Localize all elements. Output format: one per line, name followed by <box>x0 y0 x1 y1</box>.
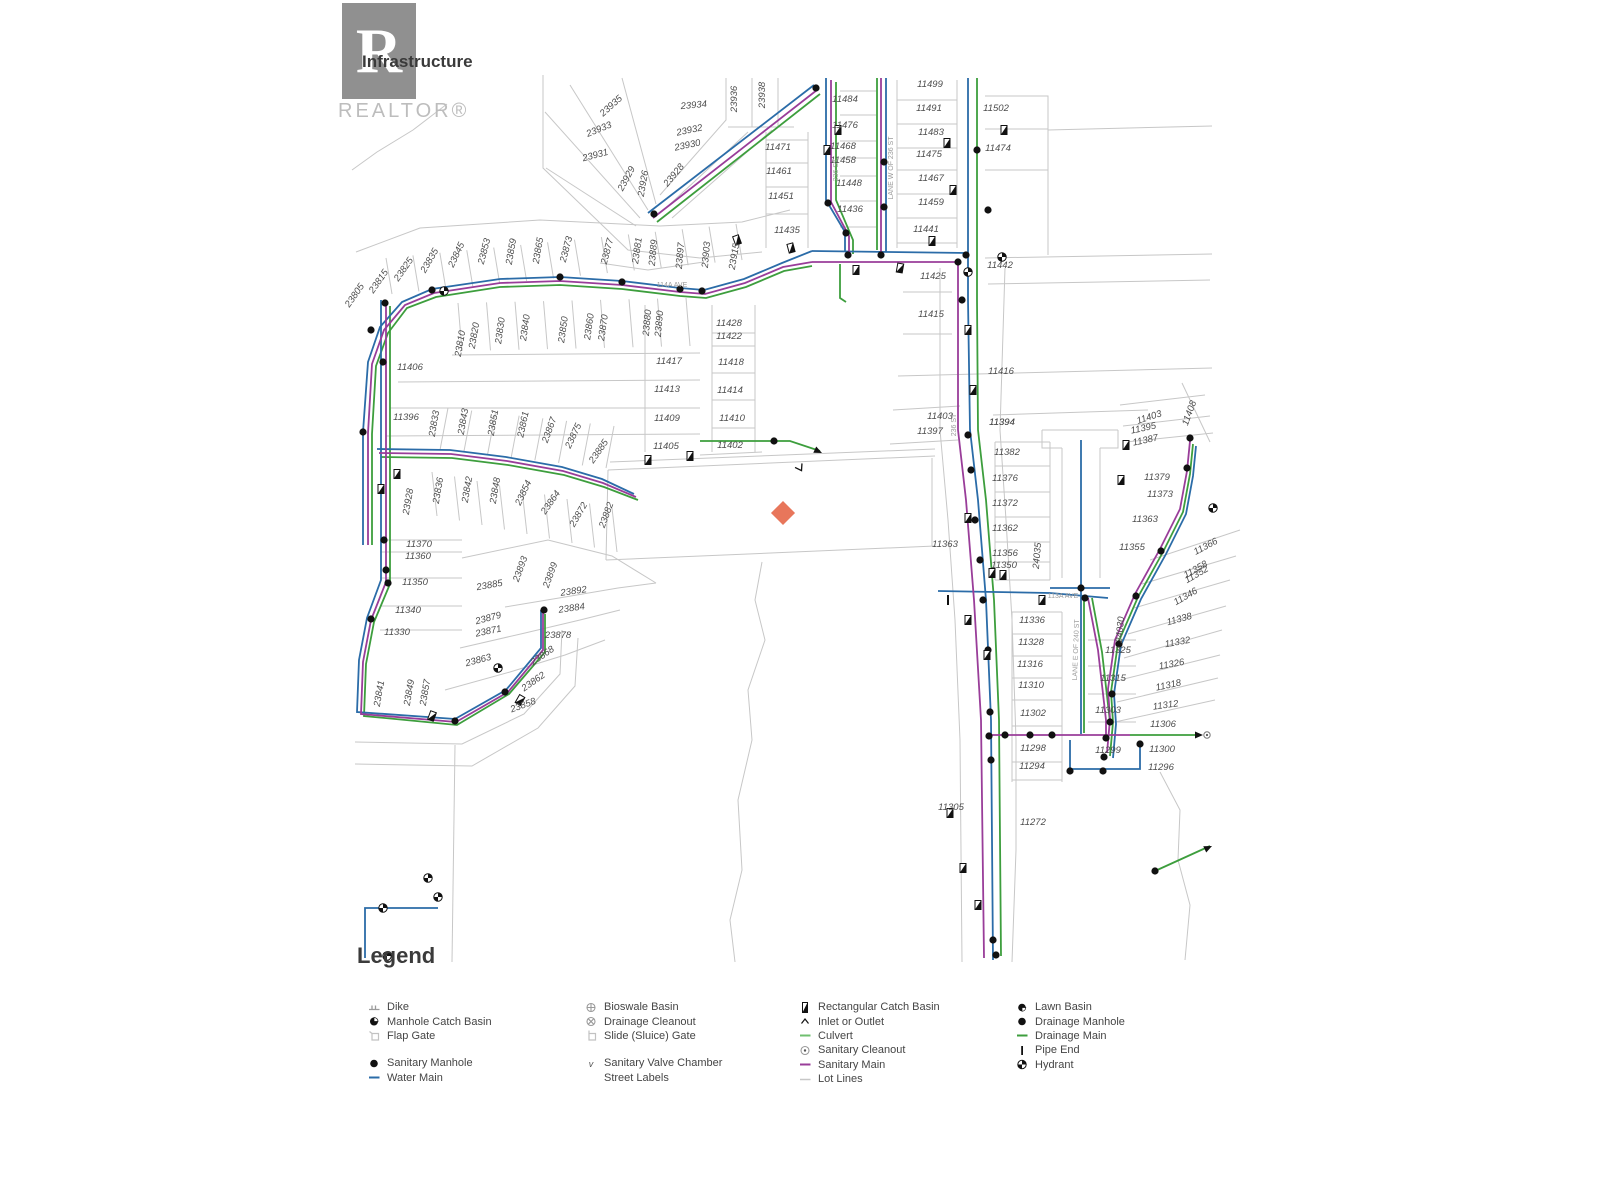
lot-number-label: 23845 <box>446 240 468 270</box>
catch-basin-icon <box>1000 571 1006 580</box>
manhole-icon <box>1151 867 1158 874</box>
manhole-icon <box>380 536 387 543</box>
lot-number-label: 11299 <box>1095 745 1121 756</box>
legend-item-lot-lines: Lot Lines <box>799 1072 940 1086</box>
lot-number-label: 23926 <box>636 169 652 199</box>
hydrant-icon <box>379 904 387 912</box>
manhole-icon <box>1102 734 1109 741</box>
manhole-icon <box>367 615 374 622</box>
legend-item-label: Pipe End <box>1035 1044 1080 1056</box>
lot-line <box>686 298 690 346</box>
lot-number-label: 11376 <box>992 473 1018 484</box>
lot-number-label: 24035 <box>1031 541 1044 570</box>
legend-item-label: Lawn Basin <box>1035 1001 1092 1013</box>
legend-item-label: Sanitary Cleanout <box>818 1044 905 1056</box>
manhole-icon <box>844 251 851 258</box>
catch-basin-icon <box>824 146 830 155</box>
catch-basin-icon <box>944 139 950 148</box>
lot-number-label: 11302 <box>1020 708 1046 719</box>
legend-item-rectangular-catch-basin: Rectangular Catch Basin <box>799 1000 940 1014</box>
legend-item-bioswale-basin: Bioswale Basin <box>585 1000 722 1014</box>
legend-item-label: Rectangular Catch Basin <box>818 1001 940 1013</box>
manhole-icon <box>987 756 994 763</box>
lot-number-label: 11475 <box>916 149 942 160</box>
manhole-icon <box>973 146 980 153</box>
lot-line <box>521 245 527 281</box>
lot-line <box>572 301 576 349</box>
sanitary-main-line <box>958 260 984 958</box>
legend-item-label: Inlet or Outlet <box>818 1016 884 1028</box>
lot-number-label: 11382 <box>994 447 1020 458</box>
lot-number-label: 11502 <box>983 103 1009 114</box>
manhole-icon <box>1136 740 1143 747</box>
manhole-icon <box>954 258 961 265</box>
lot-line <box>1100 430 1118 448</box>
inlet-outlet-icon <box>795 463 805 472</box>
legend-item-water-main: Water Main <box>368 1071 492 1085</box>
lot-number-label: 11372 <box>992 498 1018 509</box>
catch-basin-icon <box>1039 596 1045 605</box>
catch-basin-icon <box>853 266 859 275</box>
manhole-icon <box>877 251 884 258</box>
lot-number-label: 11422 <box>716 331 742 342</box>
catch-basin-icon <box>787 243 795 253</box>
legend-item-label: Sanitary Main <box>818 1059 885 1071</box>
street-label: 236 ST <box>951 413 958 436</box>
lot-line <box>440 253 446 289</box>
manhole-icon <box>1157 547 1164 554</box>
manhole-icon <box>384 579 391 586</box>
street-label: 114A AVE <box>657 282 688 289</box>
lot-number-label: 11448 <box>836 178 862 189</box>
sanitary-manhole-icon <box>368 1057 381 1070</box>
legend-item-label: Lot Lines <box>818 1073 863 1085</box>
lot-line <box>893 406 960 410</box>
lot-number-label: 23835 <box>418 246 442 276</box>
lot-number-label: 23934 <box>679 99 707 112</box>
drainage-main-line <box>1092 598 1110 722</box>
lot-number-label: 11396 <box>393 412 419 423</box>
lot-number-label: 23889 <box>647 238 660 267</box>
cleanout-icon <box>1206 734 1208 736</box>
catch-basin-icon <box>970 386 976 395</box>
catch-basin-icon <box>965 514 971 523</box>
catch-basin-icon <box>896 263 903 273</box>
lot-number-label: 23893 <box>511 554 531 584</box>
infrastructure-map-page: 2393523933239312392923926239282393423932… <box>0 0 1600 1200</box>
legend-item-sanitary-cleanout: Sanitary Cleanout <box>799 1043 940 1057</box>
lot-number-label: 11316 <box>1017 659 1043 670</box>
lot-number-label: 11306 <box>1150 719 1176 730</box>
manhole-icon <box>382 566 389 573</box>
lot-line <box>890 440 958 444</box>
dike-icon <box>368 1001 381 1014</box>
manhole-icon <box>1183 464 1190 471</box>
lot-number-label: 11350 <box>991 560 1017 571</box>
lot-line <box>515 302 519 350</box>
lot-number-label: 11451 <box>768 191 794 202</box>
manhole-icon <box>1077 584 1084 591</box>
manhole-icon <box>367 326 374 333</box>
lot-number-label: 11403 <box>927 411 953 422</box>
lot-number-label: 11296 <box>1148 762 1174 773</box>
water-main-icon <box>368 1071 381 1084</box>
lot-number-label: 11346 <box>1172 585 1200 608</box>
catch-basin-icon <box>960 864 966 873</box>
drainage-main-line <box>1155 846 1210 871</box>
culvert-icon <box>799 1029 812 1042</box>
catch-basin-icon <box>965 326 971 335</box>
lot-number-label: 11303 <box>1095 705 1121 716</box>
lot-number-label: 11362 <box>992 523 1018 534</box>
lot-number-label: 11417 <box>656 356 682 367</box>
legend-item-label: Drainage Manhole <box>1035 1016 1125 1028</box>
lot-number-label: 11366 <box>1192 536 1220 558</box>
legend-item-label: Dike <box>387 1001 409 1013</box>
lot-number-label: 11461 <box>766 166 792 177</box>
manhole-icon <box>992 951 999 958</box>
manhole-icon <box>1048 731 1055 738</box>
lot-number-label: 11370 <box>406 539 432 550</box>
manhole-icon <box>964 431 971 438</box>
pipe-end-icon <box>1016 1044 1029 1057</box>
lot-number-label: 11474 <box>985 143 1011 154</box>
manhole-icon <box>824 199 831 206</box>
pipe-end-icon <box>947 595 949 605</box>
lot-number-label: 11484 <box>832 94 858 105</box>
legend-item-label: Slide (Sluice) Gate <box>604 1030 696 1042</box>
manhole-icon <box>1132 592 1139 599</box>
lot-line <box>629 299 633 347</box>
street-label: 113A AVE <box>1048 593 1079 600</box>
lot-number-label: 23805 <box>342 281 367 310</box>
slide-gate-icon <box>585 1029 598 1042</box>
manhole-icon <box>958 296 965 303</box>
lot-number-label: 11312 <box>1152 698 1180 713</box>
legend-item-label: Sanitary Manhole <box>387 1057 473 1069</box>
legend-item-label: Water Main <box>387 1072 443 1084</box>
lot-number-label: 11418 <box>718 357 744 368</box>
sanitary-main-line <box>361 303 543 722</box>
manhole-icon <box>986 708 993 715</box>
lot-number-label: 11499 <box>917 79 943 90</box>
lot-number-label: 23865 <box>531 236 547 266</box>
lot-line <box>993 410 1148 415</box>
lot-number-label: 11428 <box>716 318 742 329</box>
legend-item-hydrant: Hydrant <box>1016 1058 1125 1072</box>
lot-number-label: 23859 <box>504 237 520 267</box>
lot-line <box>606 546 935 560</box>
lot-number-label: 11471 <box>765 142 791 153</box>
lot-line <box>398 380 700 382</box>
manhole-icon <box>770 437 777 444</box>
manhole-icon <box>379 358 386 365</box>
lot-number-label: 11425 <box>920 271 946 282</box>
manhole-icon <box>556 273 563 280</box>
lot-number-label: 23833 <box>427 409 443 439</box>
lot-line <box>1042 430 1062 448</box>
lot-number-label: 23892 <box>559 584 588 599</box>
lot-number-label: 11363 <box>932 539 958 550</box>
lot-line <box>477 481 482 525</box>
lot-number-label: 23878 <box>544 630 572 641</box>
hydrant-icon <box>424 874 432 882</box>
lot-number-label: 11414 <box>717 385 743 396</box>
manhole-icon <box>1026 731 1033 738</box>
drainage-main-line <box>840 264 846 302</box>
legend-item-drainage-manhole: Drainage Manhole <box>1016 1014 1125 1028</box>
manhole-icon <box>984 206 991 213</box>
manhole-icon <box>812 84 819 91</box>
lot-line <box>988 280 1210 284</box>
manhole-icon <box>381 299 388 306</box>
lot-line <box>985 96 1048 255</box>
legend-column-3: Rectangular Catch BasinInlet or OutletCu… <box>799 1000 940 1086</box>
manhole-icon <box>1099 767 1106 774</box>
lot-number-label: 23830 <box>493 316 508 345</box>
legend-item-label: Manhole Catch Basin <box>387 1016 492 1028</box>
lot-number-label: 11305 <box>938 802 964 813</box>
manhole-icon <box>451 717 458 724</box>
none-icon <box>585 1071 598 1084</box>
manhole-icon <box>359 428 366 435</box>
lot-number-label: 11468 <box>830 141 856 152</box>
lot-number-label: 23884 <box>557 601 586 616</box>
lot-number-label: 11272 <box>1020 817 1046 828</box>
manhole-icon <box>842 229 849 236</box>
manhole-icon <box>1108 690 1115 697</box>
manhole-icon <box>1001 731 1008 738</box>
lot-number-label: 23842 <box>460 475 476 505</box>
rect-catch-basin-icon <box>799 1001 812 1014</box>
hydrant-icon <box>964 268 972 276</box>
lot-number-label: 11315 <box>1100 673 1126 684</box>
lot-number-label: 23857 <box>418 678 434 708</box>
manhole-icon <box>698 287 705 294</box>
drainage-manhole-icon <box>1016 1015 1029 1028</box>
lot-number-label: 23932 <box>674 122 704 139</box>
lot-number-label: 11332 <box>1164 635 1192 650</box>
flow-arrow-icon <box>1195 732 1203 739</box>
lot-number-label: 23885 <box>586 437 611 466</box>
legend-item-label: Bioswale Basin <box>604 1001 679 1013</box>
legend-item-dike: Dike <box>368 1000 492 1014</box>
legend-item-pipe-end: Pipe End <box>1016 1043 1125 1057</box>
lot-number-label: 23850 <box>556 315 571 344</box>
legend-item-label: Drainage Cleanout <box>604 1016 696 1028</box>
lot-number-label: 11356 <box>992 548 1018 559</box>
manhole-icon <box>650 210 657 217</box>
lot-line <box>455 477 460 521</box>
lot-number-label: 11402 <box>717 440 743 451</box>
catch-basin-icon <box>1123 441 1129 450</box>
lot-line <box>494 248 500 284</box>
hydrant-icon <box>1209 504 1217 512</box>
lot-number-label: 23864 <box>538 489 563 518</box>
lot-number-label: 11409 <box>654 413 680 424</box>
legend-item-label: Drainage Main <box>1035 1030 1107 1042</box>
lot-number-label: 23851 <box>486 409 502 438</box>
lot-number-label: 11394 <box>989 417 1015 428</box>
legend-item-label: Street Labels <box>604 1072 669 1084</box>
lot-number-label: 11328 <box>1018 637 1044 648</box>
manhole-icon <box>985 732 992 739</box>
lot-number-label: 11318 <box>1155 677 1183 693</box>
manhole-icon <box>428 286 435 293</box>
catch-basin-icon <box>1001 126 1007 135</box>
lot-number-label: 11363 <box>1132 514 1158 525</box>
lot-line <box>898 368 1212 376</box>
lot-line <box>612 508 617 552</box>
catch-basin-icon <box>1118 476 1124 485</box>
sanitary-cleanout-icon <box>799 1044 812 1057</box>
hydrant-icon <box>440 287 448 295</box>
catch-basin-icon <box>378 485 384 494</box>
lot-number-label: 23903 <box>700 240 713 269</box>
lot-number-label: 11436 <box>837 204 863 215</box>
lot-line <box>985 254 1212 258</box>
catch-basin-icon <box>984 651 990 660</box>
lot-number-label: 11350 <box>402 577 428 588</box>
manhole-icon <box>1081 594 1088 601</box>
water-main-line <box>812 251 968 253</box>
legend-item-label: Hydrant <box>1035 1059 1074 1071</box>
lot-number-label: 11379 <box>1144 472 1170 483</box>
lot-number-label: 11298 <box>1020 743 1046 754</box>
lot-lines-icon <box>799 1073 812 1086</box>
lot-number-label: 11416 <box>988 366 1014 377</box>
street-label: LANE E OF 240 ST <box>1072 619 1081 681</box>
lot-number-label: 23936 <box>729 85 740 113</box>
lot-number-label: 23849 <box>402 678 418 708</box>
lot-line <box>452 745 455 962</box>
legend-title: Legend <box>357 943 435 969</box>
brand-realtor-wordmark: REALTOR® <box>338 100 469 123</box>
lot-number-label: 11326 <box>1158 657 1186 672</box>
manhole-icon <box>1186 434 1193 441</box>
lot-number-label: 11330 <box>384 627 410 638</box>
lot-number-label: 23938 <box>757 81 768 109</box>
lot-number-label: 23810 <box>453 329 469 359</box>
lot-line <box>590 504 595 548</box>
hydrant-icon <box>494 664 502 672</box>
manhole-icon <box>976 556 983 563</box>
manhole-catch-basin-icon <box>368 1015 381 1028</box>
legend-item-drainage-main: Drainage Main <box>1016 1029 1125 1043</box>
lot-number-label: 23915 <box>727 242 743 272</box>
lot-number-label: 23841 <box>372 680 388 709</box>
lot-number-label: 23885 <box>475 578 505 594</box>
legend-item-label: Flap Gate <box>387 1030 435 1042</box>
street-label: LANE W OF 236 ST <box>888 136 895 200</box>
svg-text:v: v <box>589 1059 594 1069</box>
lot-number-label: 11294 <box>1019 761 1045 772</box>
lot-number-label: 23820 <box>467 321 483 351</box>
lot-line <box>452 353 700 355</box>
lot-number-label: 11338 <box>1166 611 1194 628</box>
lot-number-label: 23935 <box>597 93 625 120</box>
lot-number-label: 11310 <box>1018 680 1044 691</box>
sanitary-valve-chamber-icon: v <box>585 1057 598 1070</box>
catch-basin-icon <box>965 616 971 625</box>
lot-line <box>608 456 935 470</box>
legend-item-drainage-cleanout: Drainage Cleanout <box>585 1014 722 1028</box>
manhole-icon <box>967 466 974 473</box>
legend-item-manhole-catch-basin: Manhole Catch Basin <box>368 1014 492 1028</box>
legend-column-4: Lawn BasinDrainage ManholeDrainage MainP… <box>1016 1000 1125 1072</box>
lawn-basin-icon <box>1016 1001 1029 1014</box>
lot-number-label: 11355 <box>1119 542 1145 553</box>
manhole-icon <box>962 251 969 258</box>
lot-number-label: 11373 <box>1147 489 1173 500</box>
brand-title: Infrastructure <box>362 52 473 72</box>
manhole-icon <box>540 606 547 613</box>
lot-number-label: 11325 <box>1105 645 1131 656</box>
lot-number-label: 11435 <box>774 225 800 236</box>
lot-line <box>548 242 554 278</box>
catch-basin-icon <box>645 456 651 465</box>
manhole-icon <box>1066 767 1073 774</box>
lot-number-label: 11459 <box>918 197 944 208</box>
lot-number-label: 11300 <box>1149 744 1175 755</box>
legend-item-sanitary-valve-chamber: vSanitary Valve Chamber <box>585 1056 722 1070</box>
legend-item-sanitary-main: Sanitary Main <box>799 1058 940 1072</box>
drainage-main-line <box>364 306 545 725</box>
lot-number-label: 23853 <box>476 236 494 266</box>
lot-number-label: 11397 <box>917 426 943 437</box>
lot-number-label: 23890 <box>653 309 666 338</box>
legend-item-culvert: Culvert <box>799 1029 940 1043</box>
lot-number-label: 23881 <box>630 237 645 266</box>
lot-number-label: 23843 <box>456 407 472 437</box>
legend-item-flap-gate: Flap Gate <box>368 1029 492 1043</box>
lot-number-label: 11483 <box>918 127 944 138</box>
drainage-main-icon <box>1016 1029 1029 1042</box>
manhole-icon <box>971 516 978 523</box>
lot-number-label: 11441 <box>913 224 939 235</box>
lot-line <box>730 562 765 962</box>
lot-number-label: 23928 <box>401 487 417 517</box>
lot-number-label: 11336 <box>1019 615 1045 626</box>
lot-line <box>544 301 548 349</box>
legend-item-inlet-or-outlet: Inlet or Outlet <box>799 1014 940 1028</box>
manhole-icon <box>880 158 887 165</box>
hydrant-icon <box>1016 1058 1029 1071</box>
realtor-logo: R <box>342 3 416 99</box>
lot-line <box>462 540 656 583</box>
lot-number-label: 23899 <box>541 560 561 590</box>
bioswale-basin-icon <box>585 1001 598 1014</box>
lot-number-label: 11405 <box>653 441 679 452</box>
lot-number-label: 11442 <box>987 260 1013 271</box>
legend-item-slide-sluice-gate: Slide (Sluice) Gate <box>585 1029 722 1043</box>
lot-number-label: 11491 <box>916 103 942 114</box>
lot-number-label: 23840 <box>518 313 533 342</box>
inlet-outlet-icon <box>799 1015 812 1028</box>
manhole-icon <box>989 936 996 943</box>
legend-item-lawn-basin: Lawn Basin <box>1016 1000 1125 1014</box>
lot-number-label: 23872 <box>567 500 591 530</box>
legend-item-street-labels: Street Labels <box>585 1071 722 1085</box>
lot-line <box>487 302 491 350</box>
lot-number-label: 11410 <box>719 413 745 424</box>
lot-number-label: 11467 <box>918 173 944 184</box>
lot-number-label: 11415 <box>918 309 944 320</box>
lot-number-label: 23863 <box>463 652 493 670</box>
lot-number-label: 23877 <box>599 236 617 266</box>
lot-number-label: 11360 <box>405 551 431 562</box>
catch-basin-icon <box>929 237 935 246</box>
